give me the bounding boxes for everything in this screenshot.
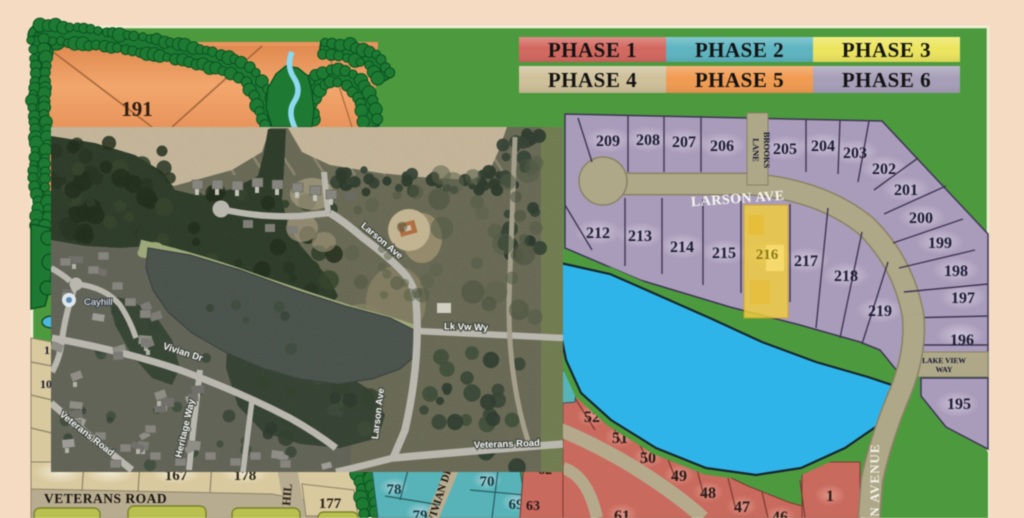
svg-text:VETERANS ROAD: VETERANS ROAD	[44, 491, 167, 506]
svg-text:206: 206	[710, 138, 734, 155]
svg-text:219: 219	[868, 303, 892, 320]
svg-text:78: 78	[387, 482, 402, 498]
svg-text:217: 217	[794, 253, 818, 270]
svg-text:49: 49	[671, 468, 687, 485]
svg-text:201: 201	[894, 182, 918, 199]
svg-text:191: 191	[121, 97, 153, 121]
svg-text:208: 208	[636, 132, 660, 149]
svg-text:PHASE 3: PHASE 3	[842, 38, 931, 62]
svg-text:214: 214	[670, 239, 694, 256]
svg-text:63: 63	[526, 499, 540, 514]
svg-text:PHASE 5: PHASE 5	[695, 68, 784, 92]
svg-text:215: 215	[712, 245, 736, 262]
svg-text:70: 70	[480, 474, 495, 490]
svg-text:196: 196	[950, 332, 974, 349]
svg-text:PHASE 6: PHASE 6	[842, 68, 931, 92]
svg-text:LAKE VIEW: LAKE VIEW	[922, 356, 966, 365]
svg-text:PHASE 2: PHASE 2	[695, 38, 784, 62]
svg-text:203: 203	[843, 145, 867, 162]
svg-text:205: 205	[773, 141, 797, 158]
svg-text:202: 202	[872, 161, 896, 178]
svg-text:1: 1	[44, 343, 50, 357]
svg-text:79: 79	[413, 508, 428, 518]
svg-text:HIL: HIL	[279, 483, 295, 506]
svg-text:LANE: LANE	[751, 138, 761, 162]
svg-text:209: 209	[596, 133, 620, 150]
svg-text:PHASE 4: PHASE 4	[548, 68, 637, 92]
svg-text:PHASE 1: PHASE 1	[548, 38, 637, 62]
svg-text:47: 47	[734, 499, 750, 516]
svg-text:10: 10	[40, 377, 52, 391]
svg-text:N AVENUE: N AVENUE	[867, 443, 882, 516]
svg-text:48: 48	[700, 485, 716, 502]
svg-text:212: 212	[586, 225, 610, 242]
svg-text:61: 61	[614, 508, 630, 518]
svg-text:207: 207	[672, 134, 696, 151]
svg-text:204: 204	[811, 138, 835, 155]
svg-text:197: 197	[951, 290, 975, 307]
svg-text:1: 1	[826, 488, 834, 505]
svg-text:Lk Vw Wy: Lk Vw Wy	[444, 321, 489, 334]
svg-text:216: 216	[756, 247, 779, 263]
svg-text:198: 198	[944, 263, 968, 280]
svg-text:BROOKS: BROOKS	[762, 132, 772, 169]
svg-text:195: 195	[947, 396, 971, 413]
svg-text:213: 213	[628, 228, 652, 245]
svg-text:Cayhill: Cayhill	[84, 297, 113, 308]
svg-text:Veterans Road: Veterans Road	[474, 438, 541, 451]
svg-text:218: 218	[834, 268, 858, 285]
svg-text:46: 46	[772, 509, 788, 518]
svg-text:200: 200	[909, 210, 933, 227]
svg-text:199: 199	[928, 235, 952, 252]
svg-text:WAY: WAY	[936, 365, 953, 374]
svg-text:177: 177	[319, 496, 342, 512]
